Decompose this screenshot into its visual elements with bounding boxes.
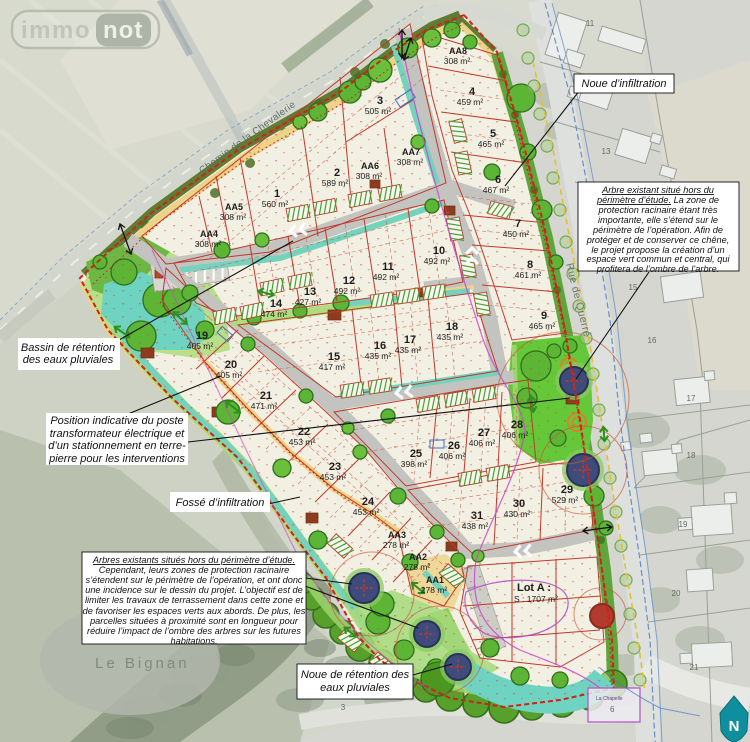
svg-text:Position indicative du poste: Position indicative du poste — [50, 415, 183, 427]
svg-text:278 m²: 278 m² — [383, 540, 410, 550]
svg-text:AA5: AA5 — [225, 202, 243, 212]
svg-text:Noue de rétention des: Noue de rétention des — [301, 669, 410, 681]
svg-text:réduire l’impact de l’ombre de: réduire l’impact de l’ombre des arbres s… — [87, 626, 301, 636]
svg-text:transformateur électrique et: transformateur électrique et — [50, 428, 185, 440]
svg-text:pierre pour les interventions: pierre pour les interventions — [48, 453, 185, 465]
svg-text:profitera de l’ombre de l’arbr: profitera de l’ombre de l’arbre. — [596, 264, 720, 274]
svg-text:308 m²: 308 m² — [195, 239, 222, 249]
svg-text:308 m²: 308 m² — [220, 212, 247, 222]
svg-text:405 m²: 405 m² — [216, 370, 243, 380]
svg-text:308 m²: 308 m² — [356, 171, 383, 181]
svg-text:de favoriser les espaces verts: de favoriser les espaces verts aux abord… — [83, 606, 306, 616]
svg-text:AA8: AA8 — [449, 46, 467, 56]
svg-text:Cependant, leurs zones de prot: Cependant, leurs zones de protection rac… — [99, 565, 290, 575]
svg-text:17: 17 — [687, 394, 696, 403]
svg-text:308 m²: 308 m² — [397, 157, 424, 167]
svg-text:589 m²: 589 m² — [322, 178, 349, 188]
svg-text:405 m²: 405 m² — [187, 341, 214, 351]
svg-text:3: 3 — [341, 703, 346, 712]
svg-text:560 m²: 560 m² — [262, 199, 289, 209]
svg-text:parcelles situées à proximité: parcelles situées à proximité sont en lo… — [89, 616, 299, 626]
svg-text:11: 11 — [586, 19, 595, 28]
svg-text:habitations.: habitations. — [171, 636, 218, 646]
svg-text:450 m²: 450 m² — [503, 229, 530, 239]
svg-text:AA7: AA7 — [402, 147, 420, 157]
svg-text:immo: immo — [21, 17, 91, 44]
svg-text:d’un stationnement en terre-: d’un stationnement en terre- — [48, 440, 186, 452]
svg-text:492 m²: 492 m² — [424, 256, 451, 266]
svg-text:6: 6 — [610, 705, 615, 714]
svg-text:278 m²: 278 m² — [421, 585, 448, 595]
svg-text:Arbre existant situé hors du: Arbre existant situé hors du — [601, 185, 714, 195]
svg-text:406 m²: 406 m² — [469, 438, 496, 448]
svg-text:AA3: AA3 — [388, 530, 406, 540]
svg-text:une incidence sur le dessin du: une incidence sur le dessin du projet. L… — [85, 585, 303, 595]
svg-text:465 m²: 465 m² — [478, 139, 505, 149]
svg-text:périmètre d’étude. La zone de: périmètre d’étude. La zone de — [596, 195, 719, 205]
svg-text:492 m²: 492 m² — [373, 272, 400, 282]
svg-text:Lot A :: Lot A : — [517, 582, 551, 594]
svg-text:278 m²: 278 m² — [404, 562, 431, 572]
svg-text:protection racinaire étant trè: protection racinaire étant très — [598, 205, 718, 215]
svg-text:s’étendent sur le périmètre de: s’étendent sur le périmètre de l’opérati… — [85, 575, 302, 585]
svg-text:435 m²: 435 m² — [437, 332, 464, 342]
svg-text:Bassin de rétention: Bassin de rétention — [21, 342, 115, 354]
svg-text:453 m²: 453 m² — [320, 472, 347, 482]
svg-text:430 m²: 430 m² — [504, 509, 531, 519]
svg-text:406 m²: 406 m² — [439, 451, 466, 461]
svg-text:427 m²: 427 m² — [295, 297, 322, 307]
svg-text:474 m²: 474 m² — [261, 309, 288, 319]
svg-text:importante, elle s’étend sur l: importante, elle s’étend sur le — [598, 215, 718, 225]
svg-text:398 m²: 398 m² — [401, 459, 428, 469]
svg-text:Noue d’infiltration: Noue d’infiltration — [582, 78, 667, 90]
svg-text:Fossé d’infiltration: Fossé d’infiltration — [176, 497, 265, 509]
svg-text:limiter les travaux de terrass: limiter les travaux de terrassement dans… — [85, 595, 303, 605]
svg-text:461 m²: 461 m² — [515, 270, 542, 280]
svg-text:not: not — [103, 17, 143, 44]
svg-text:406 m²: 406 m² — [502, 430, 529, 440]
svg-text:21: 21 — [690, 663, 699, 672]
svg-text:AA1: AA1 — [426, 575, 444, 585]
svg-text:459 m²: 459 m² — [457, 97, 484, 107]
svg-text:529 m²: 529 m² — [552, 495, 579, 505]
svg-text:Le Bignan: Le Bignan — [95, 655, 190, 672]
svg-text:AA6: AA6 — [361, 161, 379, 171]
svg-text:453 m²: 453 m² — [289, 437, 316, 447]
svg-text:Arbres existants situés hors d: Arbres existants situés hors du périmètr… — [92, 555, 295, 565]
svg-text:467 m²: 467 m² — [483, 185, 510, 195]
svg-text:La Chapelle: La Chapelle — [596, 696, 623, 702]
svg-text:AA4: AA4 — [200, 229, 218, 239]
svg-text:N: N — [729, 718, 740, 735]
svg-text:eaux pluviales: eaux pluviales — [320, 682, 390, 694]
svg-text:S : 1707 m²: S : 1707 m² — [514, 594, 558, 604]
svg-text:435 m²: 435 m² — [365, 351, 392, 361]
svg-text:20: 20 — [672, 589, 681, 598]
svg-text:13: 13 — [602, 147, 611, 156]
svg-text:périmètre de l’opération. Afin: périmètre de l’opération. Afin de — [592, 225, 723, 235]
svg-text:18: 18 — [687, 451, 696, 460]
svg-text:espace vert commun et central,: espace vert commun et central, qui — [587, 254, 731, 264]
svg-text:19: 19 — [679, 520, 688, 529]
svg-text:471 m²: 471 m² — [251, 401, 278, 411]
svg-text:492 m²: 492 m² — [334, 286, 361, 296]
svg-text:465 m²: 465 m² — [529, 321, 556, 331]
svg-text:438 m²: 438 m² — [462, 521, 489, 531]
svg-text:435 m²: 435 m² — [395, 345, 422, 355]
svg-text:16: 16 — [648, 336, 657, 345]
svg-text:417 m²: 417 m² — [319, 362, 346, 372]
svg-text:AA2: AA2 — [409, 552, 427, 562]
svg-text:protéger et de conserver ce ch: protéger et de conserver ce chêne, — [586, 235, 730, 245]
svg-text:505 m²: 505 m² — [365, 106, 392, 116]
svg-text:des eaux pluviales: des eaux pluviales — [23, 354, 114, 366]
svg-text:453 m²: 453 m² — [353, 507, 380, 517]
svg-text:308 m²: 308 m² — [444, 56, 471, 66]
